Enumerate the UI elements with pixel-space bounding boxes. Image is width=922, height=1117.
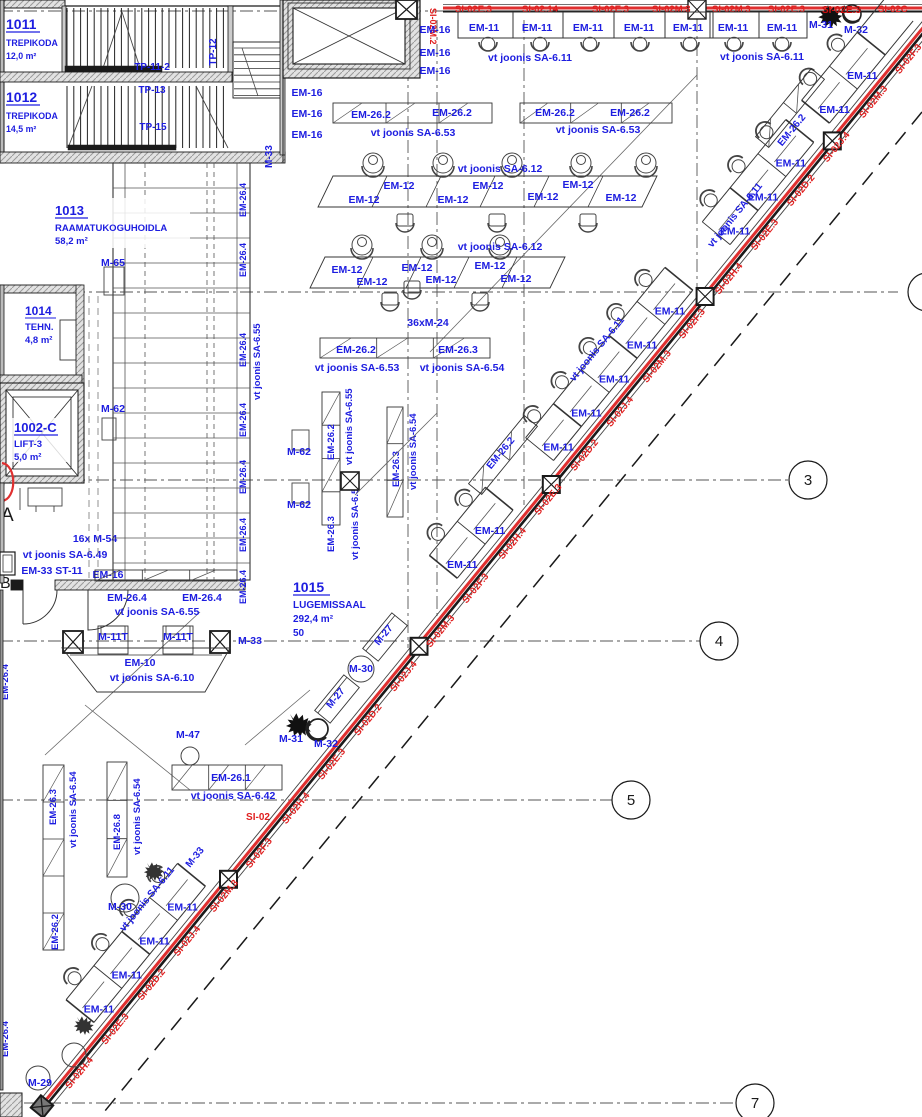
svg-text:EM-26.4: EM-26.4 (182, 592, 222, 604)
svg-text:SI-02C: SI-02C (878, 4, 908, 15)
svg-text:SI-02: SI-02 (246, 812, 270, 823)
svg-text:EM-11: EM-11 (718, 22, 749, 34)
svg-text:EM-11: EM-11 (655, 305, 686, 317)
svg-text:EM-12: EM-12 (384, 180, 415, 192)
svg-text:vt joonis SA-6.55: vt joonis SA-6.55 (115, 606, 200, 618)
svg-text:vt joonis SA-6.10: vt joonis SA-6.10 (110, 672, 195, 684)
svg-text:EM-26.1: EM-26.1 (211, 772, 251, 784)
svg-text:EM-11: EM-11 (475, 525, 506, 537)
svg-text:M-33: M-33 (264, 145, 275, 168)
svg-text:vt joonis SA-6.12: vt joonis SA-6.12 (458, 163, 543, 175)
svg-text:EM-26.4: EM-26.4 (238, 183, 248, 217)
svg-text:EM-12: EM-12 (473, 180, 504, 192)
svg-text:vt joonis SA-6.42: vt joonis SA-6.42 (191, 790, 276, 802)
svg-text:EM-11: EM-11 (776, 158, 807, 170)
svg-text:36xM-24: 36xM-24 (407, 317, 449, 329)
svg-text:EM-12: EM-12 (332, 264, 363, 276)
svg-text:TP-15: TP-15 (139, 122, 167, 133)
svg-text:EM-11: EM-11 (167, 901, 198, 913)
svg-text:M-47: M-47 (176, 729, 200, 741)
svg-text:EM-11: EM-11 (819, 104, 850, 116)
svg-text:EM-26.2: EM-26.2 (535, 107, 575, 119)
svg-text:5: 5 (627, 792, 635, 809)
svg-text:M-33: M-33 (238, 635, 262, 647)
svg-text:vt joonis SA-6.54: vt joonis SA-6.54 (68, 771, 79, 848)
svg-text:4,8 m²: 4,8 m² (25, 335, 52, 346)
svg-text:M-62: M-62 (287, 446, 311, 458)
svg-text:LUGEMISSAAL: LUGEMISSAAL (293, 600, 366, 611)
svg-text:EM-26.8: EM-26.8 (112, 814, 123, 850)
svg-text:EM-11: EM-11 (469, 22, 500, 34)
svg-text:EM-12: EM-12 (528, 191, 559, 203)
svg-text:EM-26.2: EM-26.2 (50, 914, 61, 950)
svg-text:vt joonis SA-6.55: vt joonis SA-6.55 (252, 323, 263, 400)
svg-text:EM-26.4: EM-26.4 (238, 570, 248, 604)
svg-text:EM-12: EM-12 (402, 262, 433, 274)
svg-text:M-29: M-29 (28, 1077, 52, 1089)
svg-text:EM-26.4: EM-26.4 (238, 403, 248, 437)
svg-text:EM-26.4: EM-26.4 (238, 460, 248, 494)
svg-text:SI-02E.3: SI-02E.3 (822, 5, 861, 16)
svg-text:M-62: M-62 (287, 499, 311, 511)
svg-text:EM-26.3: EM-26.3 (438, 344, 478, 356)
svg-text:EM-33 ST-11: EM-33 ST-11 (21, 565, 82, 577)
svg-text:EM-26.3: EM-26.3 (391, 451, 402, 487)
svg-text:EM-11: EM-11 (624, 22, 655, 34)
svg-text:vt joonis SA-6.49: vt joonis SA-6.49 (23, 549, 108, 561)
svg-text:50: 50 (293, 628, 305, 639)
svg-text:EM-26.2: EM-26.2 (432, 107, 472, 119)
svg-text:EM-11: EM-11 (571, 408, 602, 420)
svg-text:vt joonis SA-6.11: vt joonis SA-6.11 (488, 52, 572, 64)
svg-text:EM-11: EM-11 (847, 70, 878, 82)
svg-text:EM-11: EM-11 (543, 442, 574, 454)
svg-text:EM-16: EM-16 (292, 87, 323, 99)
svg-text:1013: 1013 (55, 203, 84, 218)
svg-text:EM-16: EM-16 (420, 65, 451, 77)
svg-text:EM-12: EM-12 (501, 273, 532, 285)
svg-text:SI-02.14: SI-02.14 (522, 4, 559, 15)
svg-text:M-30: M-30 (349, 663, 373, 675)
svg-text:M-62: M-62 (101, 403, 125, 415)
svg-text:EM-16: EM-16 (292, 129, 323, 141)
svg-text:vt joonis SA-6.54: vt joonis SA-6.54 (132, 778, 143, 855)
svg-text:TP-11-2: TP-11-2 (134, 62, 170, 73)
svg-text:16x M-54: 16x M-54 (73, 533, 118, 545)
svg-text:EM-11: EM-11 (673, 22, 704, 34)
svg-text:12,0 m²: 12,0 m² (6, 51, 36, 61)
svg-text:M-11T: M-11T (98, 631, 128, 643)
svg-text:EM-26.4: EM-26.4 (238, 333, 248, 367)
svg-text:M-11T: M-11T (163, 631, 193, 643)
svg-text:58,2 m²: 58,2 m² (55, 236, 88, 247)
svg-text:EM-26.3: EM-26.3 (326, 516, 337, 552)
svg-text:M-65: M-65 (101, 257, 125, 269)
svg-text:1014: 1014 (25, 304, 52, 318)
svg-text:EM-12: EM-12 (426, 274, 457, 286)
svg-text:292,4 m²: 292,4 m² (293, 614, 334, 625)
svg-text:EM-11: EM-11 (599, 373, 630, 385)
svg-text:4: 4 (715, 633, 723, 650)
svg-text:5,0 m²: 5,0 m² (14, 452, 41, 463)
svg-text:EM-12: EM-12 (438, 194, 469, 206)
svg-text:1002-C: 1002-C (14, 420, 57, 435)
svg-text:7: 7 (751, 1095, 759, 1112)
svg-text:EM-11: EM-11 (522, 22, 553, 34)
svg-text:EM-12: EM-12 (563, 179, 594, 191)
svg-text:EM-12: EM-12 (357, 276, 388, 288)
svg-text:vt joonis SA-6.12: vt joonis SA-6.12 (458, 241, 543, 253)
svg-text:SI-02M.3: SI-02M.3 (712, 4, 751, 15)
svg-text:TREPIKODA: TREPIKODA (6, 38, 58, 48)
svg-text:TP-12: TP-12 (208, 38, 219, 66)
svg-text:EM-26.2: EM-26.2 (610, 107, 650, 119)
svg-text:M-30: M-30 (108, 901, 132, 913)
svg-text:M-31: M-31 (809, 19, 833, 31)
svg-text:EM-26.2: EM-26.2 (351, 109, 391, 121)
svg-text:EM-26.4: EM-26.4 (238, 243, 248, 277)
svg-text:EM-11: EM-11 (139, 935, 170, 947)
svg-text:vt joonis SA-6.53: vt joonis SA-6.53 (556, 124, 641, 136)
svg-text:SI-02E.3: SI-02E.3 (592, 4, 629, 15)
svg-text:14,5 m²: 14,5 m² (6, 124, 36, 134)
svg-text:EM-26.4: EM-26.4 (238, 518, 248, 552)
svg-text:EM-26.2: EM-26.2 (336, 344, 376, 356)
svg-text:1011: 1011 (6, 16, 37, 32)
svg-text:TP-13: TP-13 (138, 85, 166, 96)
svg-text:1012: 1012 (6, 89, 37, 105)
svg-text:1015: 1015 (293, 579, 324, 595)
svg-text:EM-11: EM-11 (767, 22, 798, 34)
svg-text:EM-10: EM-10 (125, 657, 156, 669)
svg-text:3: 3 (804, 472, 812, 489)
svg-text:EM-12: EM-12 (606, 192, 637, 204)
svg-text:EM-12: EM-12 (349, 194, 380, 206)
svg-text:EM-16: EM-16 (292, 108, 323, 120)
svg-text:SI-02E.3: SI-02E.3 (455, 4, 492, 15)
svg-text:EM-26.3: EM-26.3 (48, 789, 59, 825)
svg-text:vt joonis SA-6.53: vt joonis SA-6.53 (371, 127, 456, 139)
svg-text:EM-12: EM-12 (475, 260, 506, 272)
svg-text:EM-26.4: EM-26.4 (107, 592, 147, 604)
svg-text:LIFT-3: LIFT-3 (14, 439, 42, 450)
svg-text:EM-11: EM-11 (447, 559, 478, 571)
svg-text:vt joonis SA-6.53: vt joonis SA-6.53 (315, 362, 400, 374)
svg-text:vt joonis SA-6.54: vt joonis SA-6.54 (420, 362, 505, 374)
svg-text:EM-16: EM-16 (420, 24, 451, 36)
svg-text:vt joonis SA-6.55: vt joonis SA-6.55 (344, 388, 355, 465)
svg-text:vt joonis SA-6.54: vt joonis SA-6.54 (408, 413, 419, 490)
svg-text:EM-11: EM-11 (84, 1003, 115, 1015)
svg-text:vt joonis SA-6.11: vt joonis SA-6.11 (720, 51, 804, 63)
svg-text:M-32: M-32 (314, 738, 338, 750)
svg-text:EM-26.2: EM-26.2 (326, 424, 337, 460)
svg-text:EM-11: EM-11 (112, 969, 143, 981)
svg-text:SI-02E.3: SI-02E.3 (768, 4, 805, 15)
svg-text:EM-11: EM-11 (573, 22, 604, 34)
svg-text:TEHN.: TEHN. (25, 322, 54, 333)
svg-text:SI-02M.3: SI-02M.3 (652, 4, 691, 15)
svg-text:M-31: M-31 (279, 733, 303, 745)
svg-text:EM-16: EM-16 (420, 47, 451, 59)
svg-text:RAAMATUKOGUHOIDLA: RAAMATUKOGUHOIDLA (55, 223, 167, 234)
svg-text:TREPIKODA: TREPIKODA (6, 111, 58, 121)
svg-text:EM-11: EM-11 (627, 339, 658, 351)
svg-text:vt joonis SA-6.5: vt joonis SA-6.5 (350, 488, 361, 560)
